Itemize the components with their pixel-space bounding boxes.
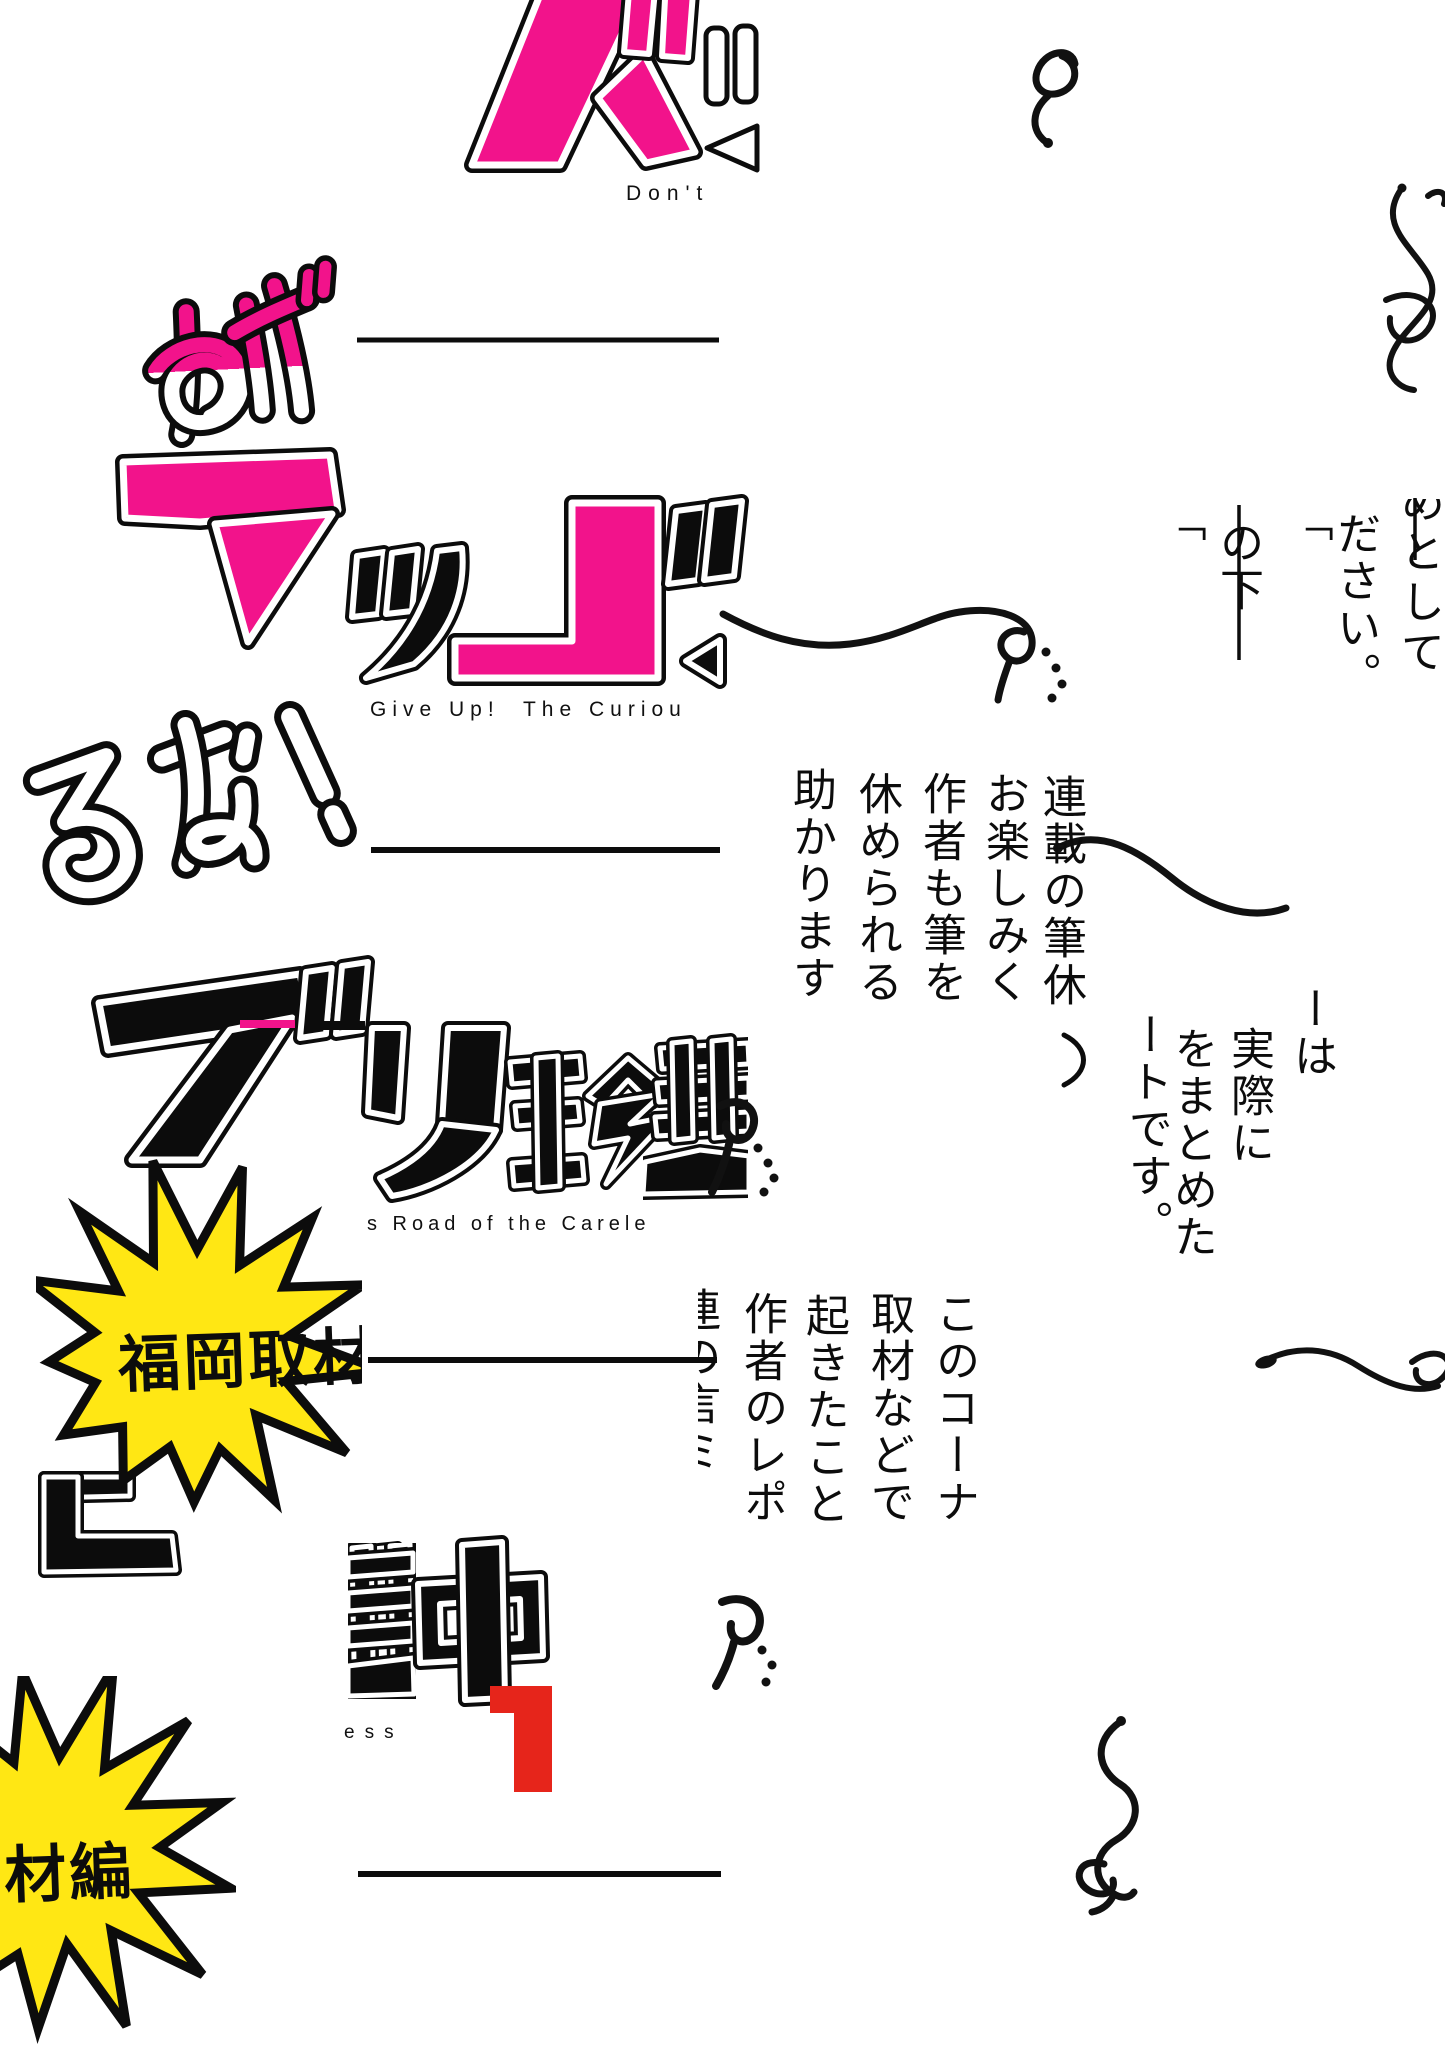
vtext-bottom-partial-clip: 連の言ミ	[698, 1287, 730, 1529]
vtext-top-right-col3: の下	[1215, 520, 1259, 614]
vtext-center-col4: 休められる	[854, 771, 898, 1006]
wave-flourish-middle	[723, 610, 1067, 702]
vertical-paren	[1064, 1035, 1084, 1085]
starburst-left-label: 福岡取材	[117, 1305, 362, 1404]
starburst-badge-left: 福岡取材	[36, 1150, 362, 1542]
starburst-badge-right: 材編	[0, 1676, 236, 2048]
vtext-top-right-col2: ださい。	[1332, 511, 1376, 699]
kanji-naka	[418, 1542, 543, 1700]
vtext-center-col5: 助かります	[788, 767, 832, 1002]
kana-zu-pink	[472, 0, 695, 165]
curl-flourish-top-right	[1035, 53, 1075, 148]
vtext-top-right-quote-b: 「	[1165, 503, 1203, 544]
kana-mege-split	[141, 267, 358, 443]
vtext-bottom-partial: 連の言ミ	[698, 1287, 716, 1475]
subtitle-fragment-giveup: Give Up! The Curiou	[370, 698, 687, 722]
kanji-michi-partial-lower	[348, 1544, 414, 1696]
starburst-right-label: 材編	[2, 1821, 135, 1915]
seam-sliver-black	[310, 1021, 365, 1030]
vtext-bottom-col1: このコーナ	[931, 1291, 975, 1526]
vtext-top-right-col1: めとして	[1396, 499, 1440, 679]
kana-pink-L-shape	[455, 501, 742, 682]
s-wave-flourish-center	[1053, 840, 1286, 913]
vtext-center-col1: 連載の筆休	[1038, 774, 1082, 1009]
curl-dots-flourish-lower	[716, 1599, 777, 1686]
subtitle-fragment-road: s Road of the Carele	[367, 1213, 650, 1236]
vtext-top-right-quote-a: 「	[1292, 503, 1330, 544]
vtext-center-col3: 作者も筆を	[918, 771, 962, 1006]
seam-sliver-pink	[240, 1020, 295, 1028]
kanji-michi-partial-upper	[643, 1039, 749, 1194]
vtext-bottom-col3: 起きたこと	[801, 1293, 845, 1528]
vtext-bottom-col4: 作者のレポ	[739, 1291, 783, 1526]
vtext-midright-col2: 実際に	[1226, 1026, 1270, 1167]
kana-fragment-white-bars	[706, 26, 757, 170]
kana-black-bu	[99, 962, 368, 1160]
kana-black-tsu-fragments	[352, 548, 463, 678]
kana-pink-bar-wedge	[123, 455, 338, 642]
kana-runa-white	[33, 698, 343, 898]
vtext-midright-col1: ーは	[1289, 986, 1333, 1080]
manga-title-collage: Don't Give Up! The Curiou s Road of the …	[0, 0, 1445, 2048]
volume-number-1	[490, 1686, 552, 1792]
kana-black-ri	[368, 1028, 504, 1196]
s-flourish-bottom-right	[1079, 1716, 1135, 1912]
tall-flourish-right	[1386, 184, 1445, 391]
vtext-center-col2: お楽しみく	[981, 771, 1025, 1006]
vtext-bottom-col2: 取材などで	[866, 1291, 910, 1526]
subtitle-fragment-dont: Don't	[626, 182, 709, 206]
vtext-top-right-col1-clip: めとして	[1396, 499, 1445, 723]
subtitle-fragment-ess: ess	[344, 1722, 404, 1744]
horizontal-swirl-right	[1254, 1350, 1445, 1389]
vtext-midright-col4: ートです。	[1124, 1012, 1168, 1247]
vtext-midright-col3: をまとめた	[1169, 1026, 1213, 1261]
